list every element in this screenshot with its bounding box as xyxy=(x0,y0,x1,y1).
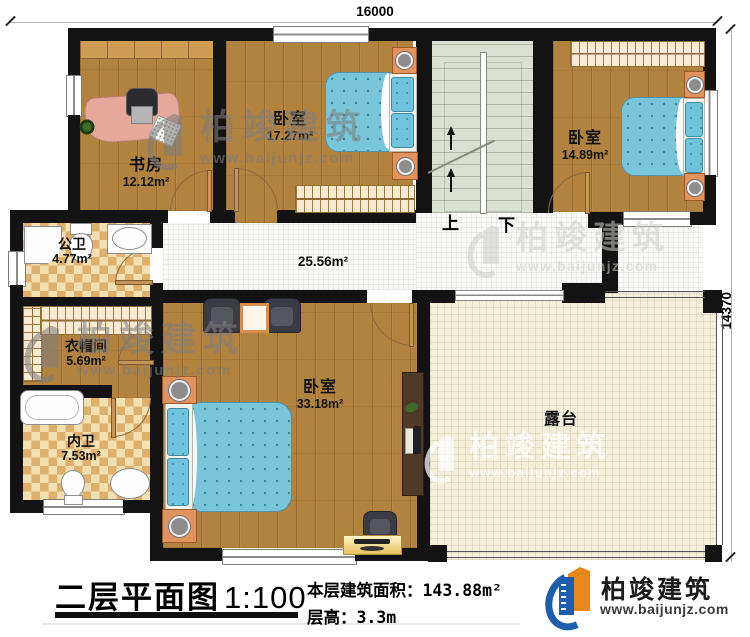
wall xyxy=(416,28,432,213)
study-door-leaf xyxy=(207,170,212,212)
hallway-floor xyxy=(618,225,703,293)
floor-area-value: 143.88m² xyxy=(423,581,502,600)
study-chair-seat xyxy=(131,106,153,124)
wall xyxy=(68,28,273,41)
window xyxy=(43,499,125,515)
lamp-icon xyxy=(169,380,190,401)
brand-building-blue xyxy=(559,577,574,615)
wall xyxy=(10,210,168,223)
bathtub-inner xyxy=(25,395,79,420)
window xyxy=(8,251,26,287)
master-armchair xyxy=(203,298,241,333)
stairs-up-label: 上 xyxy=(442,209,459,234)
wall xyxy=(703,290,722,313)
inner-bath-door-leaf xyxy=(111,398,116,438)
room-label-bedroom3: 卧室 14.89m² xyxy=(545,130,625,163)
dimension-tick xyxy=(712,16,723,27)
wall xyxy=(412,290,455,303)
drawing-title: 二层平面图1:100 xyxy=(55,572,307,617)
bedroom2-pillow xyxy=(391,113,414,148)
wall xyxy=(10,210,23,251)
armchair-seat xyxy=(271,307,293,326)
dresser-item xyxy=(354,539,390,544)
room-label-terrace: 露台 xyxy=(521,411,601,429)
floor-plan-page: 16000 14370 xyxy=(0,0,750,637)
wall xyxy=(210,210,235,223)
lamp-icon xyxy=(397,158,414,175)
terrace-railing-bottom xyxy=(447,551,705,558)
room-label-cloak: 衣帽间 5.69m² xyxy=(46,338,126,368)
brand-url: www.baijunjz.com xyxy=(600,601,729,617)
terrace-railing-right xyxy=(716,313,723,545)
wall xyxy=(150,290,367,303)
title-underline xyxy=(55,612,298,618)
master-side-table xyxy=(240,303,269,333)
stairs-down-label: 下 xyxy=(498,211,515,236)
brand-building-windows xyxy=(561,580,566,610)
brand-logo-icon xyxy=(546,565,598,623)
window xyxy=(222,549,357,565)
sink-icon xyxy=(112,227,147,250)
bedroom3-nightstand xyxy=(684,71,705,98)
window xyxy=(623,211,692,227)
bathtub-icon xyxy=(20,390,84,425)
master-bed-quilt xyxy=(186,402,292,512)
dimension-top-label: 16000 xyxy=(330,4,420,19)
wall xyxy=(68,28,80,75)
drawing-title-text: 二层平面图 xyxy=(55,580,220,615)
room-label-public-bath: 公卫 4.77m² xyxy=(32,236,112,266)
dresser-item xyxy=(360,546,384,551)
bedroom2-wardrobe xyxy=(295,185,415,213)
sink-icon xyxy=(110,468,150,499)
bedroom2-nightstand xyxy=(392,152,418,180)
lamp-icon xyxy=(687,77,703,93)
stairs-handrail xyxy=(480,52,487,214)
toilet-base xyxy=(64,495,83,505)
room-label-study: 书房 12.12m² xyxy=(106,157,186,190)
bedroom3-pillow xyxy=(685,102,703,137)
terrace-sliding-door xyxy=(455,290,564,301)
public-bath-door-leaf xyxy=(115,280,153,285)
bedroom3-wardrobe xyxy=(570,41,705,67)
floor-height-label: 层高： xyxy=(307,609,357,627)
wall xyxy=(10,500,43,513)
dimension-tick xyxy=(5,16,16,27)
lamp-icon xyxy=(169,516,190,537)
master-dresser xyxy=(343,535,402,555)
study-plant xyxy=(78,118,96,136)
wall xyxy=(705,545,722,562)
wall xyxy=(562,283,605,303)
master-door-leaf xyxy=(409,303,414,347)
floor-height-line: 层高：3.3m xyxy=(307,604,396,628)
window xyxy=(273,26,369,43)
floor-height-value: 3.3m xyxy=(357,608,397,627)
wall xyxy=(150,548,222,561)
wall xyxy=(533,28,553,213)
master-nightstand xyxy=(162,376,197,404)
room-label-master: 卧室 33.18m² xyxy=(280,379,360,412)
master-pillow xyxy=(167,408,189,456)
dimension-line-top xyxy=(10,22,718,23)
hallway-area-label: 25.56m² xyxy=(283,254,363,270)
floor-area-line: 本层建筑面积：143.88m² xyxy=(307,577,502,601)
bedroom3-pillow xyxy=(685,138,703,173)
stairs-direction-arrow xyxy=(450,176,452,192)
room-label-bedroom2: 卧室 17.27m² xyxy=(250,111,330,144)
terrace-railing-top xyxy=(605,291,705,298)
footer-divider xyxy=(42,623,520,625)
window xyxy=(66,75,82,117)
master-nightstand xyxy=(162,509,197,543)
bedroom2-nightstand xyxy=(392,47,417,74)
bedroom3-door-leaf xyxy=(585,172,590,214)
cloak-wardrobe-top xyxy=(40,306,152,335)
lamp-icon xyxy=(687,180,703,196)
master-pillow xyxy=(167,458,189,506)
wall xyxy=(428,545,447,562)
drawing-scale: 1:100 xyxy=(224,580,307,615)
room-label-inner-bath: 内卫 7.53m² xyxy=(41,433,121,463)
floor-area-label: 本层建筑面积： xyxy=(307,582,423,600)
bedroom2-pillow xyxy=(391,77,414,112)
chair-seat xyxy=(370,519,390,534)
bedroom3-nightstand xyxy=(684,173,705,201)
lamp-icon xyxy=(396,52,413,69)
armchair-seat xyxy=(211,307,233,326)
study-cabinets xyxy=(80,41,213,59)
stairs-direction-arrow xyxy=(450,134,452,150)
wall xyxy=(213,28,226,211)
bedroom2-door-leaf xyxy=(234,168,239,212)
desk-item xyxy=(413,426,421,454)
